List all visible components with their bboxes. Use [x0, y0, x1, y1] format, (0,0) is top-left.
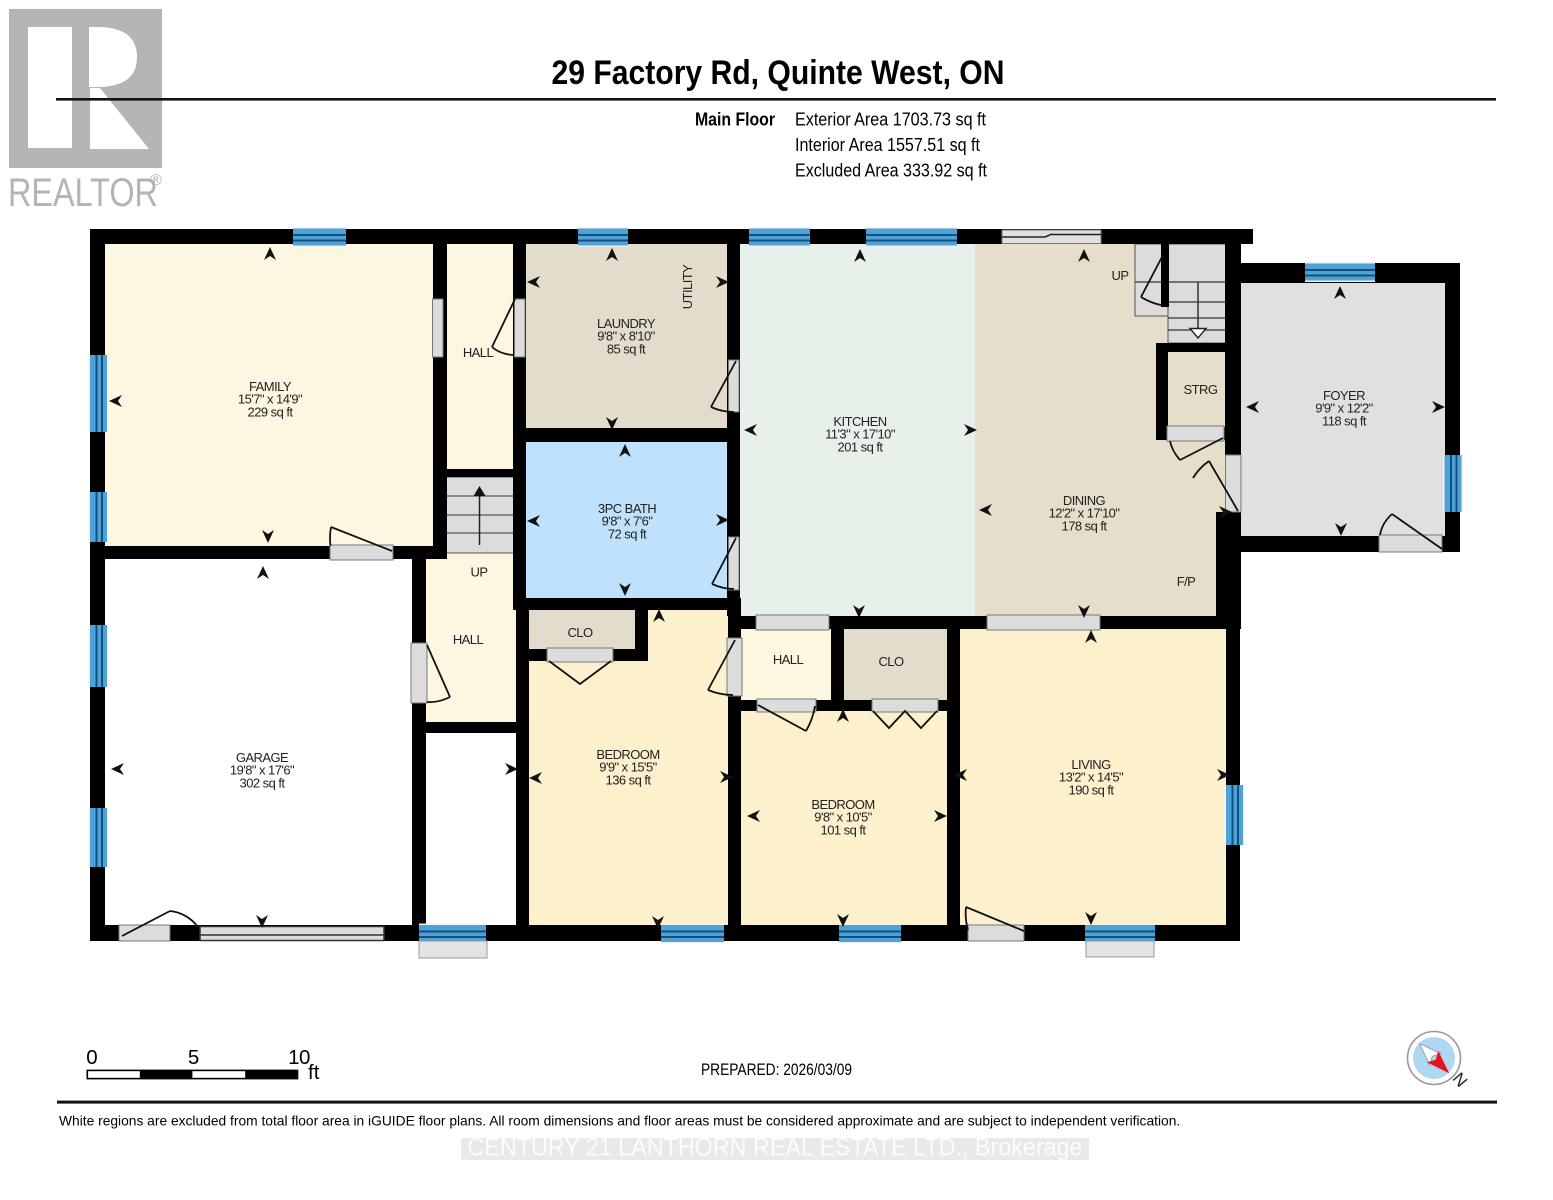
- svg-text:Interior Area 1557.51 sq ft: Interior Area 1557.51 sq ft: [795, 135, 980, 155]
- svg-text:STRG: STRG: [1184, 382, 1218, 397]
- svg-text:85 sq ft: 85 sq ft: [607, 341, 646, 356]
- svg-text:10: 10: [288, 1046, 310, 1069]
- svg-text:F/P: F/P: [1177, 574, 1196, 589]
- svg-text:201 sq ft: 201 sq ft: [838, 439, 884, 454]
- svg-text:CLO: CLO: [878, 654, 904, 669]
- svg-text:118 sq ft: 118 sq ft: [1322, 413, 1367, 428]
- svg-text:302 sq ft: 302 sq ft: [240, 775, 286, 790]
- svg-text:®: ®: [150, 172, 162, 189]
- svg-text:Excluded Area 333.92 sq ft: Excluded Area 333.92 sq ft: [795, 161, 987, 181]
- svg-text:White regions are excluded fro: White regions are excluded from total fl…: [59, 1114, 1180, 1129]
- svg-text:101 sq ft: 101 sq ft: [821, 822, 867, 837]
- svg-text:0: 0: [86, 1046, 97, 1069]
- svg-text:CLO: CLO: [567, 625, 593, 640]
- svg-text:72 sq ft: 72 sq ft: [608, 526, 647, 541]
- svg-text:UP: UP: [471, 565, 488, 580]
- svg-text:5: 5: [188, 1046, 199, 1069]
- svg-text:136 sq ft: 136 sq ft: [606, 772, 652, 787]
- svg-text:CENTURY 21 LANTHORN REAL ESTAT: CENTURY 21 LANTHORN REAL ESTATE LTD., Br…: [468, 1134, 1083, 1162]
- svg-text:REALTOR: REALTOR: [8, 170, 158, 215]
- svg-text:PREPARED: 2026/03/09: PREPARED: 2026/03/09: [701, 1061, 852, 1079]
- svg-text:178 sq ft: 178 sq ft: [1062, 518, 1108, 533]
- svg-text:HALL: HALL: [463, 345, 494, 360]
- svg-text:UTILITY: UTILITY: [680, 264, 695, 309]
- svg-text:29 Factory Rd, Quinte West, ON: 29 Factory Rd, Quinte West, ON: [552, 54, 1005, 92]
- svg-text:Main Floor: Main Floor: [695, 110, 775, 130]
- svg-text:Exterior Area 1703.73 sq ft: Exterior Area 1703.73 sq ft: [795, 110, 986, 130]
- svg-text:ft: ft: [308, 1061, 320, 1084]
- svg-text:HALL: HALL: [773, 652, 804, 667]
- svg-text:UP: UP: [1112, 268, 1129, 283]
- svg-text:190 sq ft: 190 sq ft: [1069, 782, 1115, 797]
- svg-text:HALL: HALL: [453, 632, 484, 647]
- svg-text:229 sq ft: 229 sq ft: [248, 404, 294, 419]
